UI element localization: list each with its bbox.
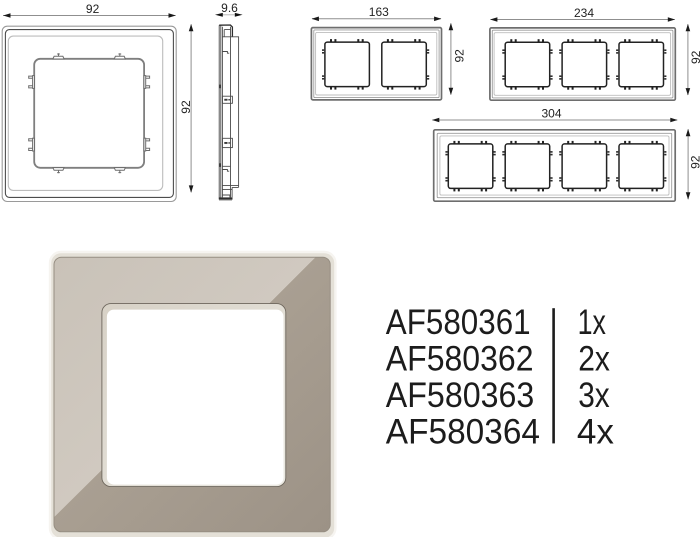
svg-text:3x: 3x [578, 375, 610, 415]
svg-text:234: 234 [574, 6, 594, 20]
svg-text:2x: 2x [578, 339, 610, 379]
svg-text:92: 92 [689, 155, 700, 169]
svg-text:AF580364: AF580364 [386, 411, 540, 451]
svg-text:AF580362: AF580362 [386, 339, 534, 379]
svg-text:AF580361: AF580361 [386, 302, 531, 342]
svg-text:1x: 1x [578, 302, 606, 342]
svg-text:92: 92 [452, 49, 466, 63]
svg-text:92: 92 [86, 2, 100, 16]
svg-text:AF580363: AF580363 [386, 375, 535, 415]
svg-text:92: 92 [689, 50, 700, 64]
svg-text:92: 92 [179, 100, 193, 114]
svg-text:304: 304 [541, 107, 561, 121]
svg-text:163: 163 [369, 5, 389, 19]
svg-text:4x: 4x [577, 411, 614, 451]
svg-text:9.6: 9.6 [221, 1, 238, 15]
